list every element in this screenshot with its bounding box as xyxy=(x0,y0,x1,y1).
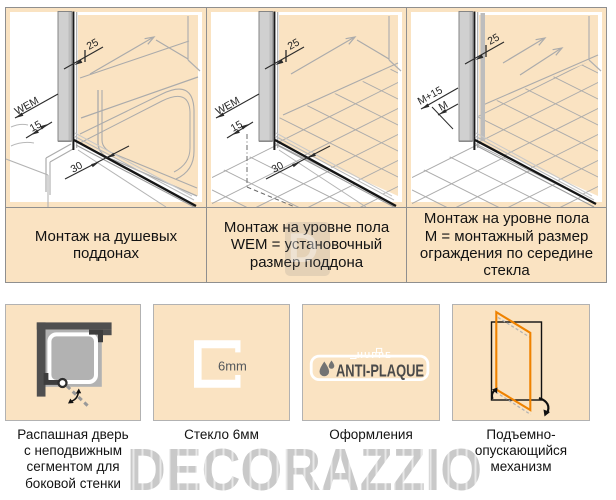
svg-text:HUPPE: HUPPE xyxy=(357,351,392,360)
svg-text:ANTI-PLAQUE: ANTI-PLAQUE xyxy=(336,361,424,381)
svg-text:6mm: 6mm xyxy=(218,359,247,374)
svg-text:DECORAZZIO: DECORAZZIO xyxy=(127,437,482,500)
